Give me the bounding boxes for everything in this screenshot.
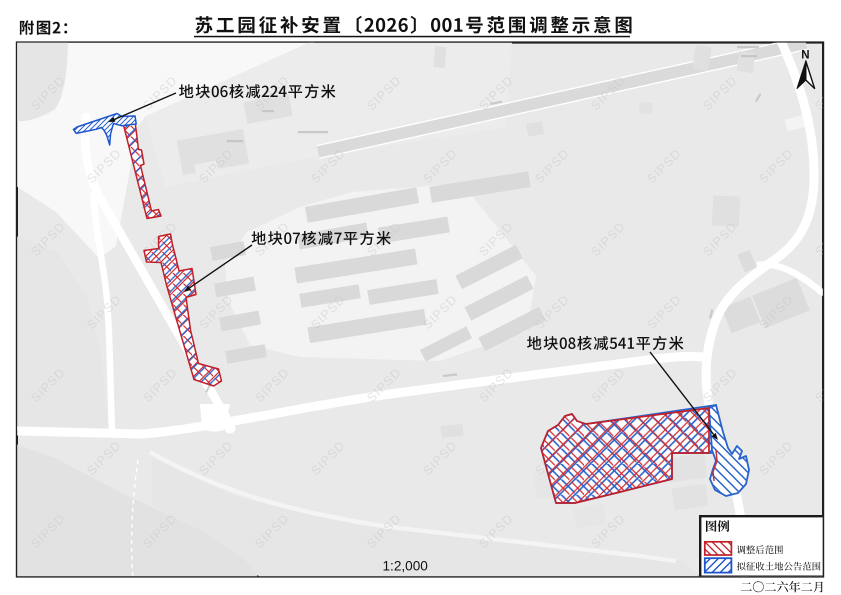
svg-text:N: N xyxy=(801,49,809,61)
svg-text:1:2,000: 1:2,000 xyxy=(383,559,429,574)
